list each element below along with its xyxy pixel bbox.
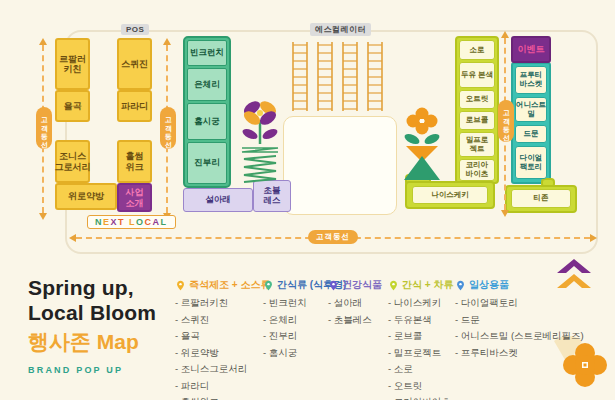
map-booth: 코리아 바이츠	[459, 159, 495, 181]
legend-column: 일상용품- 다이얼팩토리- 드문- 어니스트밀 (스트로베리필즈)- 프루티바스…	[455, 278, 584, 363]
legend-header-text: 일상용품	[469, 278, 509, 292]
map-booth: 사업 소개	[117, 183, 152, 212]
legend-item: - 홀썸위크	[175, 396, 270, 400]
legend-item: - 코리아바이츠	[388, 396, 453, 400]
map-booth: 르팔러 키친	[55, 38, 90, 90]
map-booth: 홈시궁	[187, 103, 227, 140]
map-booth: 나이스케키	[412, 186, 488, 204]
map-booth: 위로약방	[55, 183, 117, 210]
map-pin-icon	[455, 280, 466, 291]
legend-item: - 조니스그로서리	[175, 363, 270, 376]
arrow-up-icon	[39, 38, 47, 45]
map-booth: 로브콜	[459, 111, 495, 130]
flow-pill: 고객동선	[308, 230, 358, 244]
map-pin-icon	[263, 280, 274, 291]
arrow-down-icon	[501, 210, 509, 217]
next-local-letter: C	[145, 217, 153, 227]
map-pin-icon	[388, 280, 399, 291]
map-booth: 은체리	[187, 68, 227, 101]
map-booth: 파라디	[117, 90, 152, 122]
flow-line-right: 고객동선	[504, 38, 506, 210]
arrow-right-icon	[590, 234, 597, 242]
legend-header: 간식 + 차류	[388, 278, 453, 292]
map-booth: 조니스 그로서리	[55, 140, 90, 183]
map-booth: 욜곡	[55, 90, 90, 122]
arrow-up-icon	[163, 38, 171, 45]
map-booth: 빈크런치	[187, 40, 227, 66]
flow-pill: 고객동선	[498, 100, 514, 142]
legend-item: - 위로약방	[175, 347, 270, 360]
title-line3: 행사존 Map	[28, 328, 156, 356]
legend-header: 즉석제조 + 소스류	[175, 278, 270, 292]
legend-item: - 스퀴진	[175, 314, 270, 327]
title-line2: Local Bloom	[28, 301, 156, 326]
flow-pill: 고객동선	[160, 107, 176, 149]
event-map-poster: 고객동선 고객동선 고객동선 고객동선 르팔러 키친욜곡조니스 그로서리위로약방…	[0, 0, 615, 400]
legend-item: - 진부리	[263, 330, 346, 343]
legend-item: - 홈시궁	[263, 347, 346, 360]
map-booth: 드문	[515, 125, 547, 143]
legend-header-text: 건강식품	[342, 278, 382, 292]
arrow-left-icon	[69, 234, 76, 242]
legend-item: - 소로	[388, 363, 453, 376]
legend-item: - 프루티바스켓	[455, 347, 584, 360]
legend-column: 즉석제조 + 소스류- 르팔러키친- 스퀴진- 욜곡- 위로약방- 조니스그로서…	[175, 278, 270, 400]
legend-item: - 드문	[455, 314, 584, 327]
map-booth: 티존	[511, 189, 571, 208]
map-booth: 어니스트 밀	[515, 97, 547, 122]
title-line1: Spring up,	[28, 276, 156, 301]
legend-header: 건강식품	[328, 278, 382, 292]
escalator-label: 에스컬레이터	[310, 23, 371, 36]
next-local-letter: T	[118, 217, 125, 227]
map-booth: 진부리	[187, 142, 227, 184]
legend-item: - 두유본색	[388, 314, 453, 327]
map-booth: 다이얼 팩토리	[515, 146, 547, 179]
legend-item: - 밀프로젝트	[388, 347, 453, 360]
legend-item: - 어니스트밀 (스트로베리필즈)	[455, 330, 584, 343]
flow-line-bottom: 고객동선	[76, 237, 590, 239]
map-booth: 홀썸 위크	[117, 140, 152, 183]
legend-item: - 초블레스	[328, 314, 382, 327]
map-booth: 프루티 바스켓	[515, 66, 547, 94]
legend-item: - 오트릿	[388, 380, 453, 393]
next-local-logo: NEXT LOCAL	[87, 215, 176, 229]
flow-line-mid-left: 고객동선	[166, 45, 168, 213]
legend-header: 일상용품	[455, 278, 584, 292]
next-local-letter: O	[136, 217, 145, 227]
map-booth: 설아래	[183, 188, 253, 212]
map-booth: 두유 본색	[459, 62, 495, 88]
flower-pinwheel-icon	[232, 92, 288, 188]
next-local-letter: E	[103, 217, 111, 227]
next-local-letter: L	[129, 217, 136, 227]
legend-header-text: 즉석제조 + 소스류	[189, 278, 270, 292]
map-booth: 밀프로 젝트	[459, 132, 495, 157]
next-local-letter: X	[111, 217, 119, 227]
map-booth: 소로	[459, 40, 495, 60]
flow-line-left: 고객동선	[42, 45, 44, 213]
next-local-letter: N	[95, 217, 103, 227]
arrow-up-icon	[501, 31, 509, 38]
map-pin-icon	[175, 280, 186, 291]
arrow-down-icon	[39, 213, 47, 220]
map-booth: 스퀴진	[117, 38, 152, 90]
open-floor-area	[283, 116, 397, 215]
next-local-letter: A	[153, 217, 161, 227]
legend-item: - 다이얼팩토리	[455, 297, 584, 310]
legend-column: 간식 + 차류- 나이스케키- 두유본색- 로브콜- 밀프로젝트- 소로- 오트…	[388, 278, 453, 400]
flower-orange-icon	[400, 106, 444, 182]
legend-item: - 욜곡	[175, 330, 270, 343]
escalator-icon	[289, 41, 389, 113]
legend-item: - 르팔러키친	[175, 297, 270, 310]
legend-item: - 나이스케키	[388, 297, 453, 310]
pos-label: POS	[121, 24, 149, 35]
subtitle: BRAND POP UP	[28, 365, 156, 375]
legend-item: - 설아래	[328, 297, 382, 310]
flow-pill: 고객동선	[36, 107, 52, 149]
next-local-letter: L	[161, 217, 168, 227]
map-booth: 이벤트	[511, 36, 551, 63]
legend-item: - 로브콜	[388, 330, 453, 343]
map-pin-icon	[328, 280, 339, 291]
title-block: Spring up, Local Bloom 행사존 Map BRAND POP…	[28, 276, 156, 375]
legend-column: 건강식품- 설아래- 초블레스	[328, 278, 382, 330]
legend-item: - 파라디	[175, 380, 270, 393]
legend-header-text: 간식 + 차류	[402, 278, 453, 292]
map-booth: 오트릿	[459, 90, 495, 109]
